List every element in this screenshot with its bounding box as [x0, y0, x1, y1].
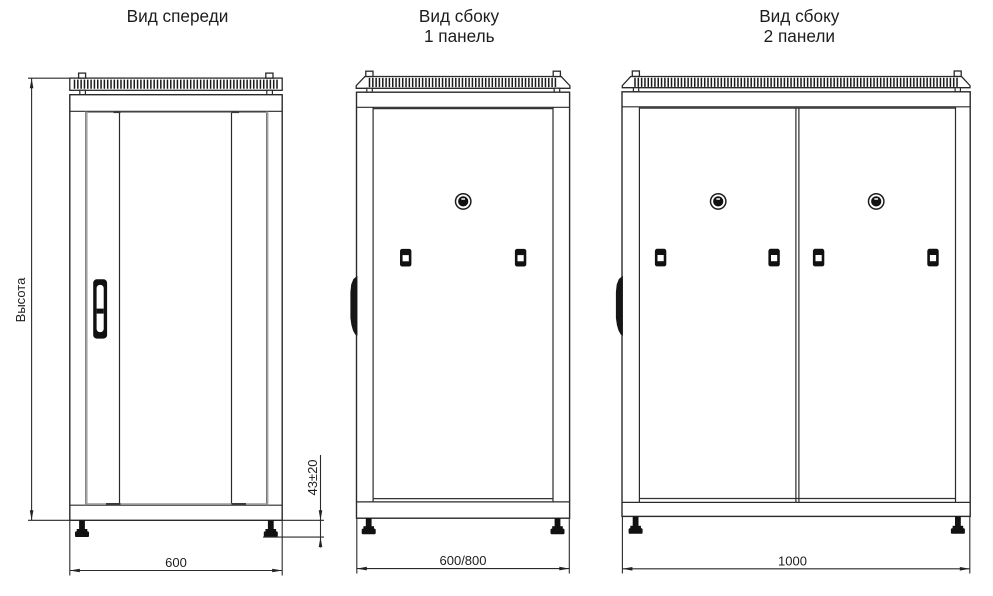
svg-text:Высота: Высота [13, 277, 28, 322]
svg-text:43±20: 43±20 [305, 459, 320, 495]
svg-text:600: 600 [165, 555, 187, 570]
svg-text:Вид сбоку: Вид сбоку [419, 6, 500, 26]
svg-text:2 панели: 2 панели [764, 26, 835, 46]
svg-text:Вид спереди: Вид спереди [127, 6, 229, 26]
svg-text:Вид сбоку: Вид сбоку [759, 6, 840, 26]
svg-text:1 панель: 1 панель [424, 26, 495, 46]
svg-text:1000: 1000 [778, 553, 807, 568]
svg-text:600/800: 600/800 [440, 553, 487, 568]
